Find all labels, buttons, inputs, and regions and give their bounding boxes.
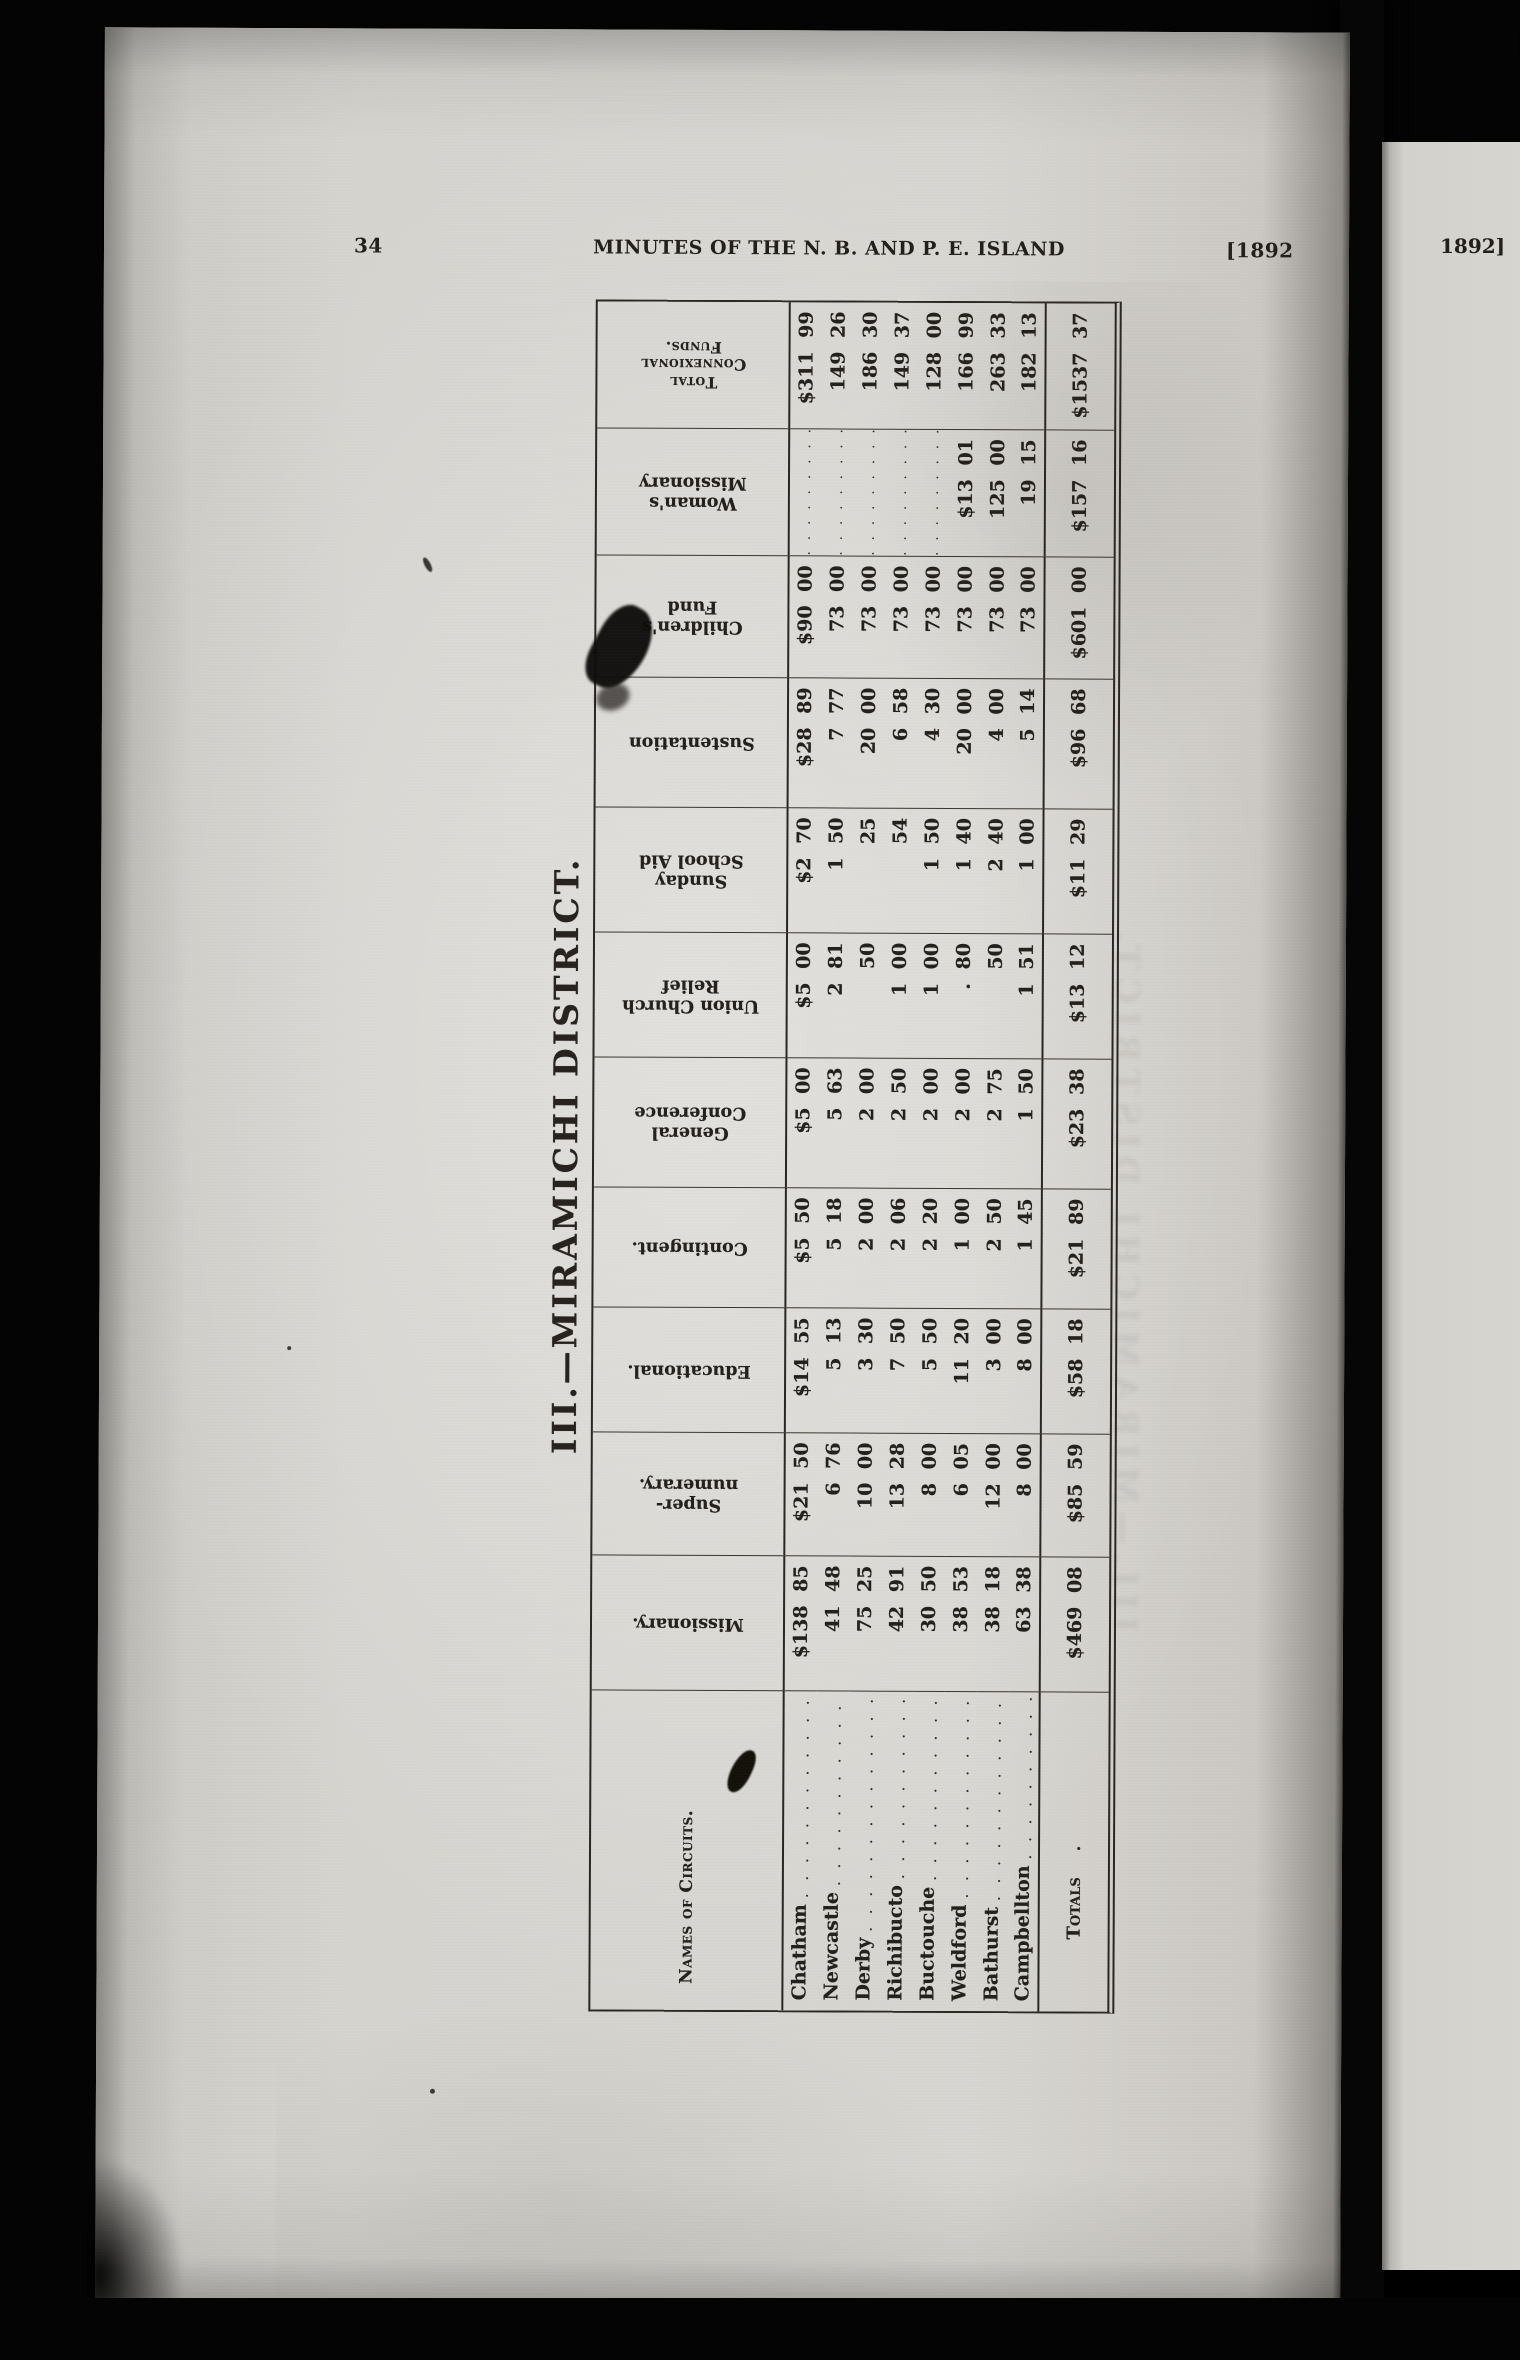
value-cell: 182 13 (1014, 303, 1047, 429)
value-cell: $2 70 (788, 807, 821, 932)
totals-value-cell: $13 12 (1043, 933, 1112, 1058)
amount-value: $13 01 (955, 430, 978, 556)
amount-value: 3 30 (855, 1309, 878, 1433)
column-header-sunday-school-aid: SundaySchool Aid (595, 806, 789, 932)
value-cell: 20 00 (949, 678, 982, 808)
totals-value-cell: $58 18 (1042, 1308, 1111, 1433)
amount-value: 5 50 (919, 1309, 942, 1433)
leader-dots: . . . . . . . . . . . . . . . . . . . . … (890, 1696, 909, 1879)
amount-value: $28 89 (794, 678, 817, 807)
amount-value: 2 00 (952, 1059, 975, 1188)
totals-amount-value: $469 08 (1064, 1557, 1087, 1691)
amount-value: 5 63 (824, 1058, 847, 1187)
value-cell: 1 00 (915, 933, 948, 1058)
value-cell: 42 91 (881, 1556, 914, 1691)
amount-value: 20 00 (954, 679, 977, 808)
value-cell: 125 00 (982, 429, 1015, 556)
circuit-name-label: Weldford (948, 1904, 970, 2011)
column-header-circuits: Names of Circuits. (590, 1689, 784, 2010)
amount-value: $311 99 (795, 302, 818, 428)
leader-dots: . . . . . . . . . . . . . . . . . . . . … (1017, 1696, 1036, 1859)
amount-value: 4 30 (922, 679, 945, 808)
amount-value: 7 50 (887, 1309, 910, 1433)
value-cell: 3 00 (978, 1308, 1011, 1433)
totals-value-cell: $157 16 (1046, 429, 1115, 556)
value-cell: 8 00 (913, 1433, 946, 1556)
value-cell: 38 18 (977, 1556, 1010, 1691)
column-header-contingent: Contingent. (593, 1186, 787, 1307)
book-page-left: 34 MINUTES OF THE N. B. AND P. E. ISLAND… (95, 27, 1350, 2306)
amount-value: 1 00 (920, 934, 943, 1058)
totals-value-cell: $96 68 (1045, 678, 1114, 808)
circuit-name-derby: Derby. . . . . . . . . . . . . . . . . .… (847, 1691, 880, 2011)
value-cell: 50 (979, 933, 1012, 1058)
totals-amount-value: $1537 37 (1069, 304, 1092, 430)
circuit-name-weldford: Weldford. . . . . . . . . . . . . . . . … (943, 1691, 976, 2011)
totals-value-cell: $1537 37 (1046, 303, 1115, 429)
value-cell: 75 25 (849, 1556, 882, 1691)
value-cell: 73 00 (1013, 556, 1046, 678)
amount-value: 75 25 (854, 1557, 877, 1691)
amount-value: 8 00 (918, 1434, 941, 1556)
circuit-name-campbellton: Campbellton. . . . . . . . . . . . . . .… (1007, 1691, 1040, 2011)
amount-value: 30 50 (918, 1557, 941, 1691)
value-cell: $90 00 (789, 555, 822, 677)
empty-cell-dots: . . . . . . . . . . . . . (830, 429, 846, 555)
value-cell: 2 00 (851, 1058, 884, 1188)
value-cell: $311 99 (790, 302, 823, 428)
amount-value: 73 00 (826, 556, 849, 677)
column-header-missionary: Missionary. (592, 1554, 786, 1690)
value-cell: 11 20 (946, 1308, 979, 1433)
amount-value: 182 13 (1018, 303, 1041, 429)
column-header-label: Names of Circuits. (676, 1810, 697, 2010)
value-cell: 5 18 (818, 1187, 851, 1307)
ink-mark (421, 556, 434, 573)
empty-cell-dots: . . . . . . . . . . . . . (862, 430, 878, 556)
amount-value: 5 18 (823, 1188, 846, 1307)
totals-value-cell: $85 59 (1041, 1433, 1110, 1556)
amount-value: $5 00 (792, 1058, 815, 1187)
value-cell: 1 00 (946, 1188, 979, 1308)
value-cell: 73 00 (917, 556, 950, 678)
value-cell: 1 40 (948, 808, 981, 933)
amount-value: 73 00 (1017, 557, 1040, 678)
value-cell: $5 00 (787, 932, 820, 1057)
value-cell: . . . . . . . . . . . . . (854, 429, 887, 556)
amount-value: 73 00 (986, 557, 1009, 678)
scanner-black-margin-left (0, 0, 102, 2360)
rotated-header-label: Contingent. (596, 1237, 782, 1258)
value-cell: 2 20 (914, 1188, 947, 1308)
value-cell: 2 00 (850, 1188, 883, 1308)
year-bracket-right: 1892] (1440, 234, 1505, 258)
amount-value: 1 50 (921, 809, 944, 933)
circuit-name-label: Richibucto (884, 1885, 907, 2011)
totals-value-cell: $601 00 (1045, 556, 1114, 678)
totals-amount-value: $23 38 (1066, 1059, 1089, 1188)
amount-value: 1 00 (888, 934, 911, 1058)
circuit-name-bathurst: Bathurst. . . . . . . . . . . . . . . . … (975, 1691, 1008, 2011)
empty-cell-dots: . . . . . . . . . . . . . (798, 429, 814, 555)
amount-value: 73 00 (858, 557, 881, 678)
value-cell: 20 00 (853, 678, 886, 808)
district-funds-table: Names of Circuits.Missionary.Super-numer… (588, 299, 1121, 2013)
value-cell: 1 50 (820, 807, 853, 932)
amount-value: 128 00 (923, 303, 946, 429)
value-cell: 2 06 (882, 1188, 915, 1308)
amount-value: 125 00 (987, 430, 1010, 556)
totals-amount-value: $157 16 (1069, 431, 1092, 557)
value-cell: 6 05 (945, 1433, 978, 1556)
amount-value: 6 05 (950, 1434, 973, 1556)
amount-value: 2 00 (856, 1059, 879, 1188)
value-cell: $13 01 (950, 429, 983, 556)
amount-value: $138 85 (790, 1556, 813, 1690)
amount-value: $90 00 (794, 556, 817, 677)
value-cell: $138 85 (785, 1555, 818, 1690)
amount-value: 2 50 (983, 1189, 1006, 1308)
value-cell: 166 99 (950, 303, 983, 429)
circuit-name-label: Chatham (788, 1904, 810, 2010)
empty-cell-dots: . . . . . . . . . . . . . (894, 430, 910, 556)
value-cell: 1 00 (883, 933, 916, 1058)
amount-value: 6 58 (890, 679, 913, 808)
amount-value: 2 81 (824, 933, 847, 1057)
value-cell: 149 26 (822, 302, 855, 428)
amount-value: 63 38 (1013, 1557, 1036, 1691)
totals-amount-value: $96 68 (1068, 680, 1091, 809)
column-header-educational: Educational. (593, 1306, 787, 1432)
value-cell: 5 63 (819, 1057, 852, 1187)
amount-value: 1 00 (951, 1189, 974, 1308)
value-cell: 7 77 (821, 677, 854, 807)
value-cell: 25 (852, 808, 885, 933)
amount-value: 149 37 (891, 303, 914, 429)
value-cell: $14 55 (786, 1307, 819, 1432)
totals-value-cell: $11 29 (1044, 808, 1113, 933)
value-cell: 128 00 (918, 303, 951, 429)
value-cell: $5 50 (786, 1187, 819, 1307)
leader-dots: . . . . . . . . . . . . . . . . . . . . … (986, 1696, 1005, 1901)
leader-dots: . . . . . . . . . . . . . . . . . . . . … (794, 1695, 813, 1898)
value-cell: 1 50 (1011, 1058, 1044, 1188)
circuit-name-chatham: Chatham. . . . . . . . . . . . . . . . .… (783, 1690, 816, 2010)
book-page-right: 1892] (1382, 142, 1520, 2270)
running-header-title: MINUTES OF THE N. B. AND P. E. ISLAND (484, 236, 1174, 261)
value-cell: 38 53 (945, 1556, 978, 1691)
amount-value: 41 48 (822, 1556, 845, 1690)
amount-value: 5 14 (1017, 679, 1040, 808)
amount-value: 8 00 (1013, 1434, 1036, 1556)
amount-value: 186 30 (859, 303, 882, 429)
amount-value: 5 13 (823, 1308, 846, 1432)
totals-label: Totals (1063, 1877, 1085, 2011)
amount-value: $14 55 (791, 1308, 814, 1432)
circuit-name-label: Campbellton (1011, 1865, 1034, 2011)
value-cell: . 80 (947, 933, 980, 1058)
amount-value: 38 53 (950, 1557, 973, 1691)
rotated-header-label: Educational. (596, 1360, 782, 1381)
value-cell: 12 00 (977, 1433, 1010, 1556)
value-cell: 73 00 (981, 556, 1014, 678)
amount-value: 50 (856, 934, 879, 1058)
amount-value: $5 50 (791, 1188, 814, 1307)
totals-amount-value: $85 59 (1064, 1434, 1087, 1556)
amount-value: 1 40 (953, 809, 976, 933)
value-cell: 1 51 (1011, 933, 1044, 1058)
circuit-name-richibucto: Richibucto. . . . . . . . . . . . . . . … (879, 1691, 912, 2011)
rotated-header-label: Union ChurchRelief (597, 975, 783, 1015)
value-cell: 7 50 (882, 1308, 915, 1433)
amount-value: 8 00 (1014, 1309, 1037, 1433)
value-cell: 149 37 (886, 303, 919, 429)
rotated-header-label: Super-numerary. (595, 1474, 781, 1514)
amount-value: 2 20 (919, 1189, 942, 1308)
amount-value: 2 40 (985, 809, 1008, 933)
totals-amount-value: $13 12 (1066, 935, 1089, 1059)
amount-value: 20 00 (858, 679, 881, 808)
amount-value: 38 18 (982, 1557, 1005, 1691)
value-cell: 186 30 (854, 303, 887, 429)
circuit-name-label: Buctouche (916, 1887, 939, 2011)
amount-value: 73 00 (954, 557, 977, 678)
totals-amount-value: $11 29 (1067, 810, 1090, 934)
amount-value: 1 50 (1015, 1059, 1038, 1188)
column-header-supernumerary: Super-numerary. (592, 1431, 786, 1555)
amount-value: 1 51 (1015, 934, 1038, 1058)
rotated-header-label: TotalConnexionalFunds. (600, 338, 786, 391)
amount-value: $2 70 (793, 808, 816, 932)
value-cell: . . . . . . . . . . . . . (822, 428, 855, 555)
value-cell: 50 (851, 933, 884, 1058)
circuit-name-label: Newcastle (820, 1892, 843, 2011)
amount-value: 6 76 (822, 1433, 845, 1555)
amount-value: 12 00 (982, 1434, 1005, 1556)
rotated-table-container: III.—MIRAMICHI DISTRICT. Names of Circui… (542, 299, 1123, 2013)
value-cell: 13 28 (881, 1433, 914, 1556)
value-cell: $28 89 (789, 677, 822, 807)
value-cell: 4 30 (917, 678, 950, 808)
totals-trailing-dot: . (1064, 1846, 1083, 1878)
amount-value: 149 26 (827, 302, 850, 428)
value-cell: 2 00 (915, 1058, 948, 1188)
amount-value: $21 50 (790, 1433, 813, 1555)
year-bracket: [1892 (1226, 238, 1294, 262)
value-cell: 73 00 (821, 555, 854, 677)
ink-speck (430, 2089, 435, 2094)
rotated-header-label: Missionary. (594, 1613, 780, 1634)
value-cell: 263 33 (982, 303, 1015, 429)
leader-dots: . . . . . . . . . . . . . . . . . . . . … (826, 1695, 845, 1886)
value-cell: 73 00 (853, 556, 886, 678)
amount-value: 3 00 (983, 1309, 1006, 1433)
amount-value: 2 00 (855, 1189, 878, 1308)
value-cell: 8 00 (1010, 1308, 1043, 1433)
amount-value: 42 91 (886, 1557, 909, 1691)
amount-value: 2 50 (888, 1059, 911, 1188)
value-cell: 73 00 (949, 556, 982, 678)
scanner-black-margin-bottom (0, 2298, 1520, 2360)
table-title: III.—MIRAMICHI DISTRICT. (542, 299, 595, 2011)
amount-value: 2 06 (887, 1189, 910, 1308)
amount-value: . 80 (952, 934, 975, 1058)
column-header-general-conference: GeneralConference (594, 1056, 788, 1187)
ink-speck (287, 1346, 291, 1350)
value-cell: 2 50 (883, 1058, 916, 1188)
rotated-header-label: GeneralConference (597, 1102, 783, 1142)
column-header-total-connexional-funds: TotalConnexionalFunds. (597, 301, 791, 428)
amount-value: 10 00 (854, 1434, 877, 1556)
value-cell: 1 00 (1012, 808, 1045, 933)
value-cell: 8 00 (1009, 1433, 1042, 1556)
amount-value: 1 00 (1016, 809, 1039, 933)
value-cell: 2 81 (819, 932, 852, 1057)
amount-value: 263 33 (987, 303, 1010, 429)
amount-value: 166 99 (955, 303, 978, 429)
amount-value: 73 00 (922, 557, 945, 678)
value-cell: 30 50 (913, 1556, 946, 1691)
page-corner-shadow (89, 2155, 186, 2305)
totals-amount-value: $21 89 (1065, 1189, 1088, 1308)
amount-value: 2 00 (920, 1059, 943, 1188)
value-cell: $5 00 (787, 1057, 820, 1187)
value-cell: 41 48 (817, 1555, 850, 1690)
value-cell: . . . . . . . . . . . . . (886, 429, 919, 556)
value-cell: 2 00 (947, 1058, 980, 1188)
amount-value: 54 (889, 809, 912, 933)
value-cell: 1 50 (916, 808, 949, 933)
rotated-header-label: Sustentation (598, 732, 784, 753)
rotated-header-label: Woman'sMissionary (599, 472, 785, 512)
value-cell: 3 30 (850, 1308, 883, 1433)
amount-value: $5 00 (792, 933, 815, 1057)
rotated-header-label: SundaySchool Aid (598, 850, 784, 890)
circuit-name-buctouche: Buctouche. . . . . . . . . . . . . . . .… (911, 1691, 944, 2011)
amount-value: 25 (857, 809, 880, 933)
amount-value: 1 50 (825, 808, 848, 932)
value-cell: . . . . . . . . . . . . . (918, 429, 951, 556)
leader-dots: . . . . . . . . . . . . . . . . . . . . … (858, 1696, 877, 1932)
value-cell: 2 40 (980, 808, 1013, 933)
totals-label-cell: Totals. (1039, 1691, 1108, 2011)
value-cell: 6 58 (885, 678, 918, 808)
circuit-name-newcastle: Newcastle. . . . . . . . . . . . . . . .… (815, 1690, 848, 2010)
paper-stain (275, 1988, 976, 2331)
value-cell: 4 00 (981, 678, 1014, 808)
value-cell: 10 00 (849, 1433, 882, 1556)
totals-amount-value: $58 18 (1065, 1309, 1088, 1433)
totals-value-cell: $23 38 (1043, 1058, 1112, 1188)
circuit-name-label: Bathurst (980, 1907, 1002, 2011)
totals-value-cell: $469 08 (1041, 1556, 1110, 1691)
amount-value: 11 20 (951, 1309, 974, 1433)
column-header-womans-missionary: Woman'sMissionary (597, 427, 791, 555)
amount-value: 73 00 (890, 557, 913, 678)
leader-dots: . . . . . . . . . . . . . . . . . . . . … (922, 1696, 941, 1881)
value-cell: 5 50 (914, 1308, 947, 1433)
value-cell: 54 (884, 808, 917, 933)
amount-value: 7 77 (826, 678, 849, 807)
totals-amount-value: $601 00 (1068, 558, 1091, 679)
value-cell: 2 50 (978, 1188, 1011, 1308)
leader-dots: . . . . . . . . . . . . . . . . . . . . … (954, 1696, 973, 1899)
value-cell: 19 15 (1014, 429, 1047, 556)
circuit-name-label: Derby (852, 1938, 874, 2011)
value-cell: . . . . . . . . . . . . . (790, 428, 823, 555)
amount-value: 13 28 (886, 1434, 909, 1556)
column-header-union-church-relief: Union ChurchRelief (594, 931, 788, 1057)
empty-cell-dots: . . . . . . . . . . . . . (926, 430, 942, 556)
value-cell: 1 45 (1010, 1188, 1043, 1308)
amount-value: 2 75 (984, 1059, 1007, 1188)
value-cell: 5 14 (1013, 678, 1046, 808)
page-number: 34 (354, 233, 383, 257)
value-cell: $21 50 (785, 1432, 818, 1555)
value-cell: 2 75 (979, 1058, 1012, 1188)
value-cell: 63 38 (1009, 1556, 1042, 1691)
value-cell: 6 76 (817, 1432, 850, 1555)
amount-value: 4 00 (986, 679, 1009, 808)
amount-value: 1 45 (1014, 1189, 1037, 1308)
totals-value-cell: $21 89 (1042, 1188, 1111, 1308)
amount-value: 50 (984, 934, 1007, 1058)
value-cell: 73 00 (885, 556, 918, 678)
value-cell: 5 13 (818, 1307, 851, 1432)
amount-value: 19 15 (1018, 430, 1041, 556)
